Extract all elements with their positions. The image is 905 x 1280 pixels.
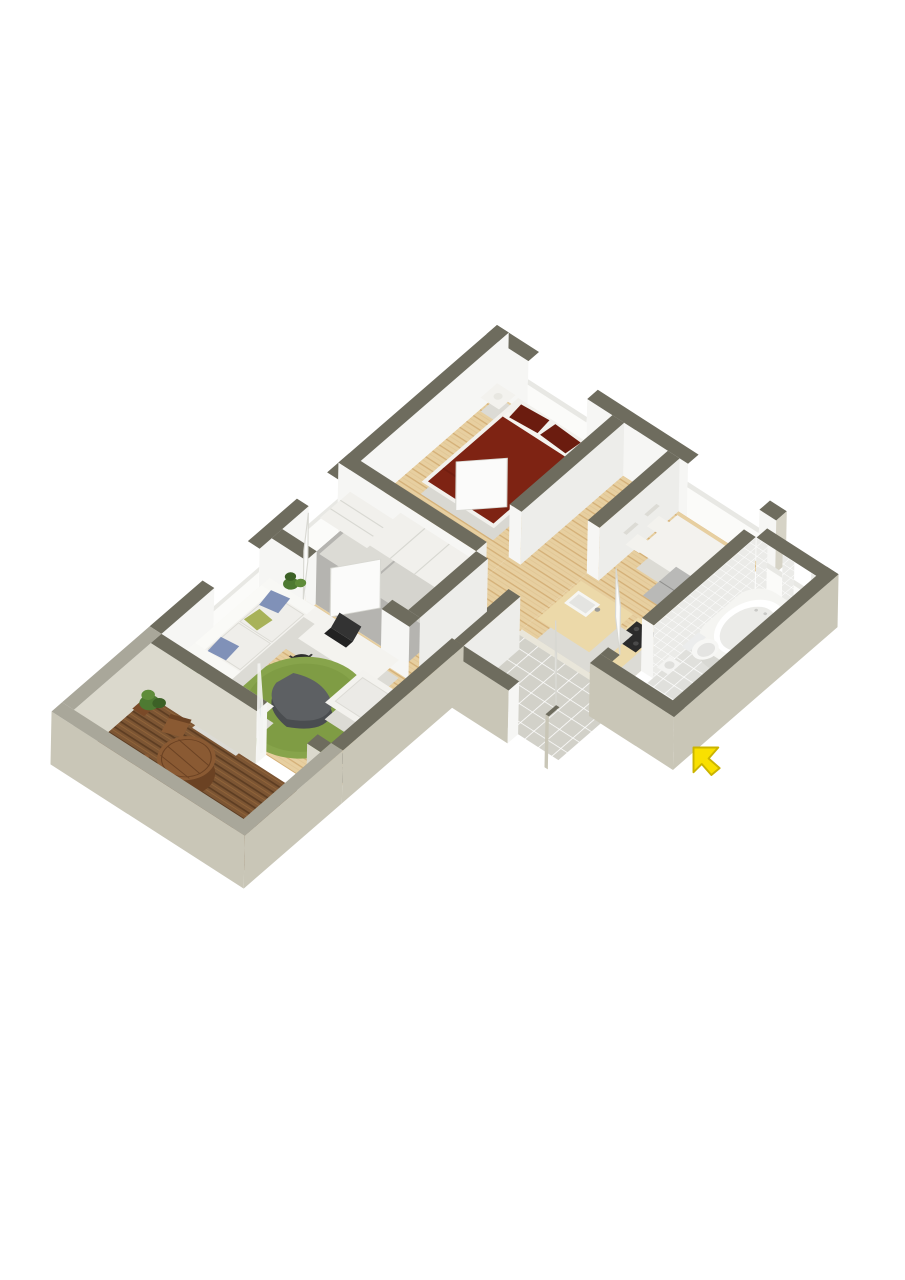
entrance-arrow — [688, 742, 732, 786]
arrow-glyph — [694, 748, 720, 776]
floorplan-render — [0, 0, 905, 1280]
plan-svg — [0, 325, 905, 1086]
